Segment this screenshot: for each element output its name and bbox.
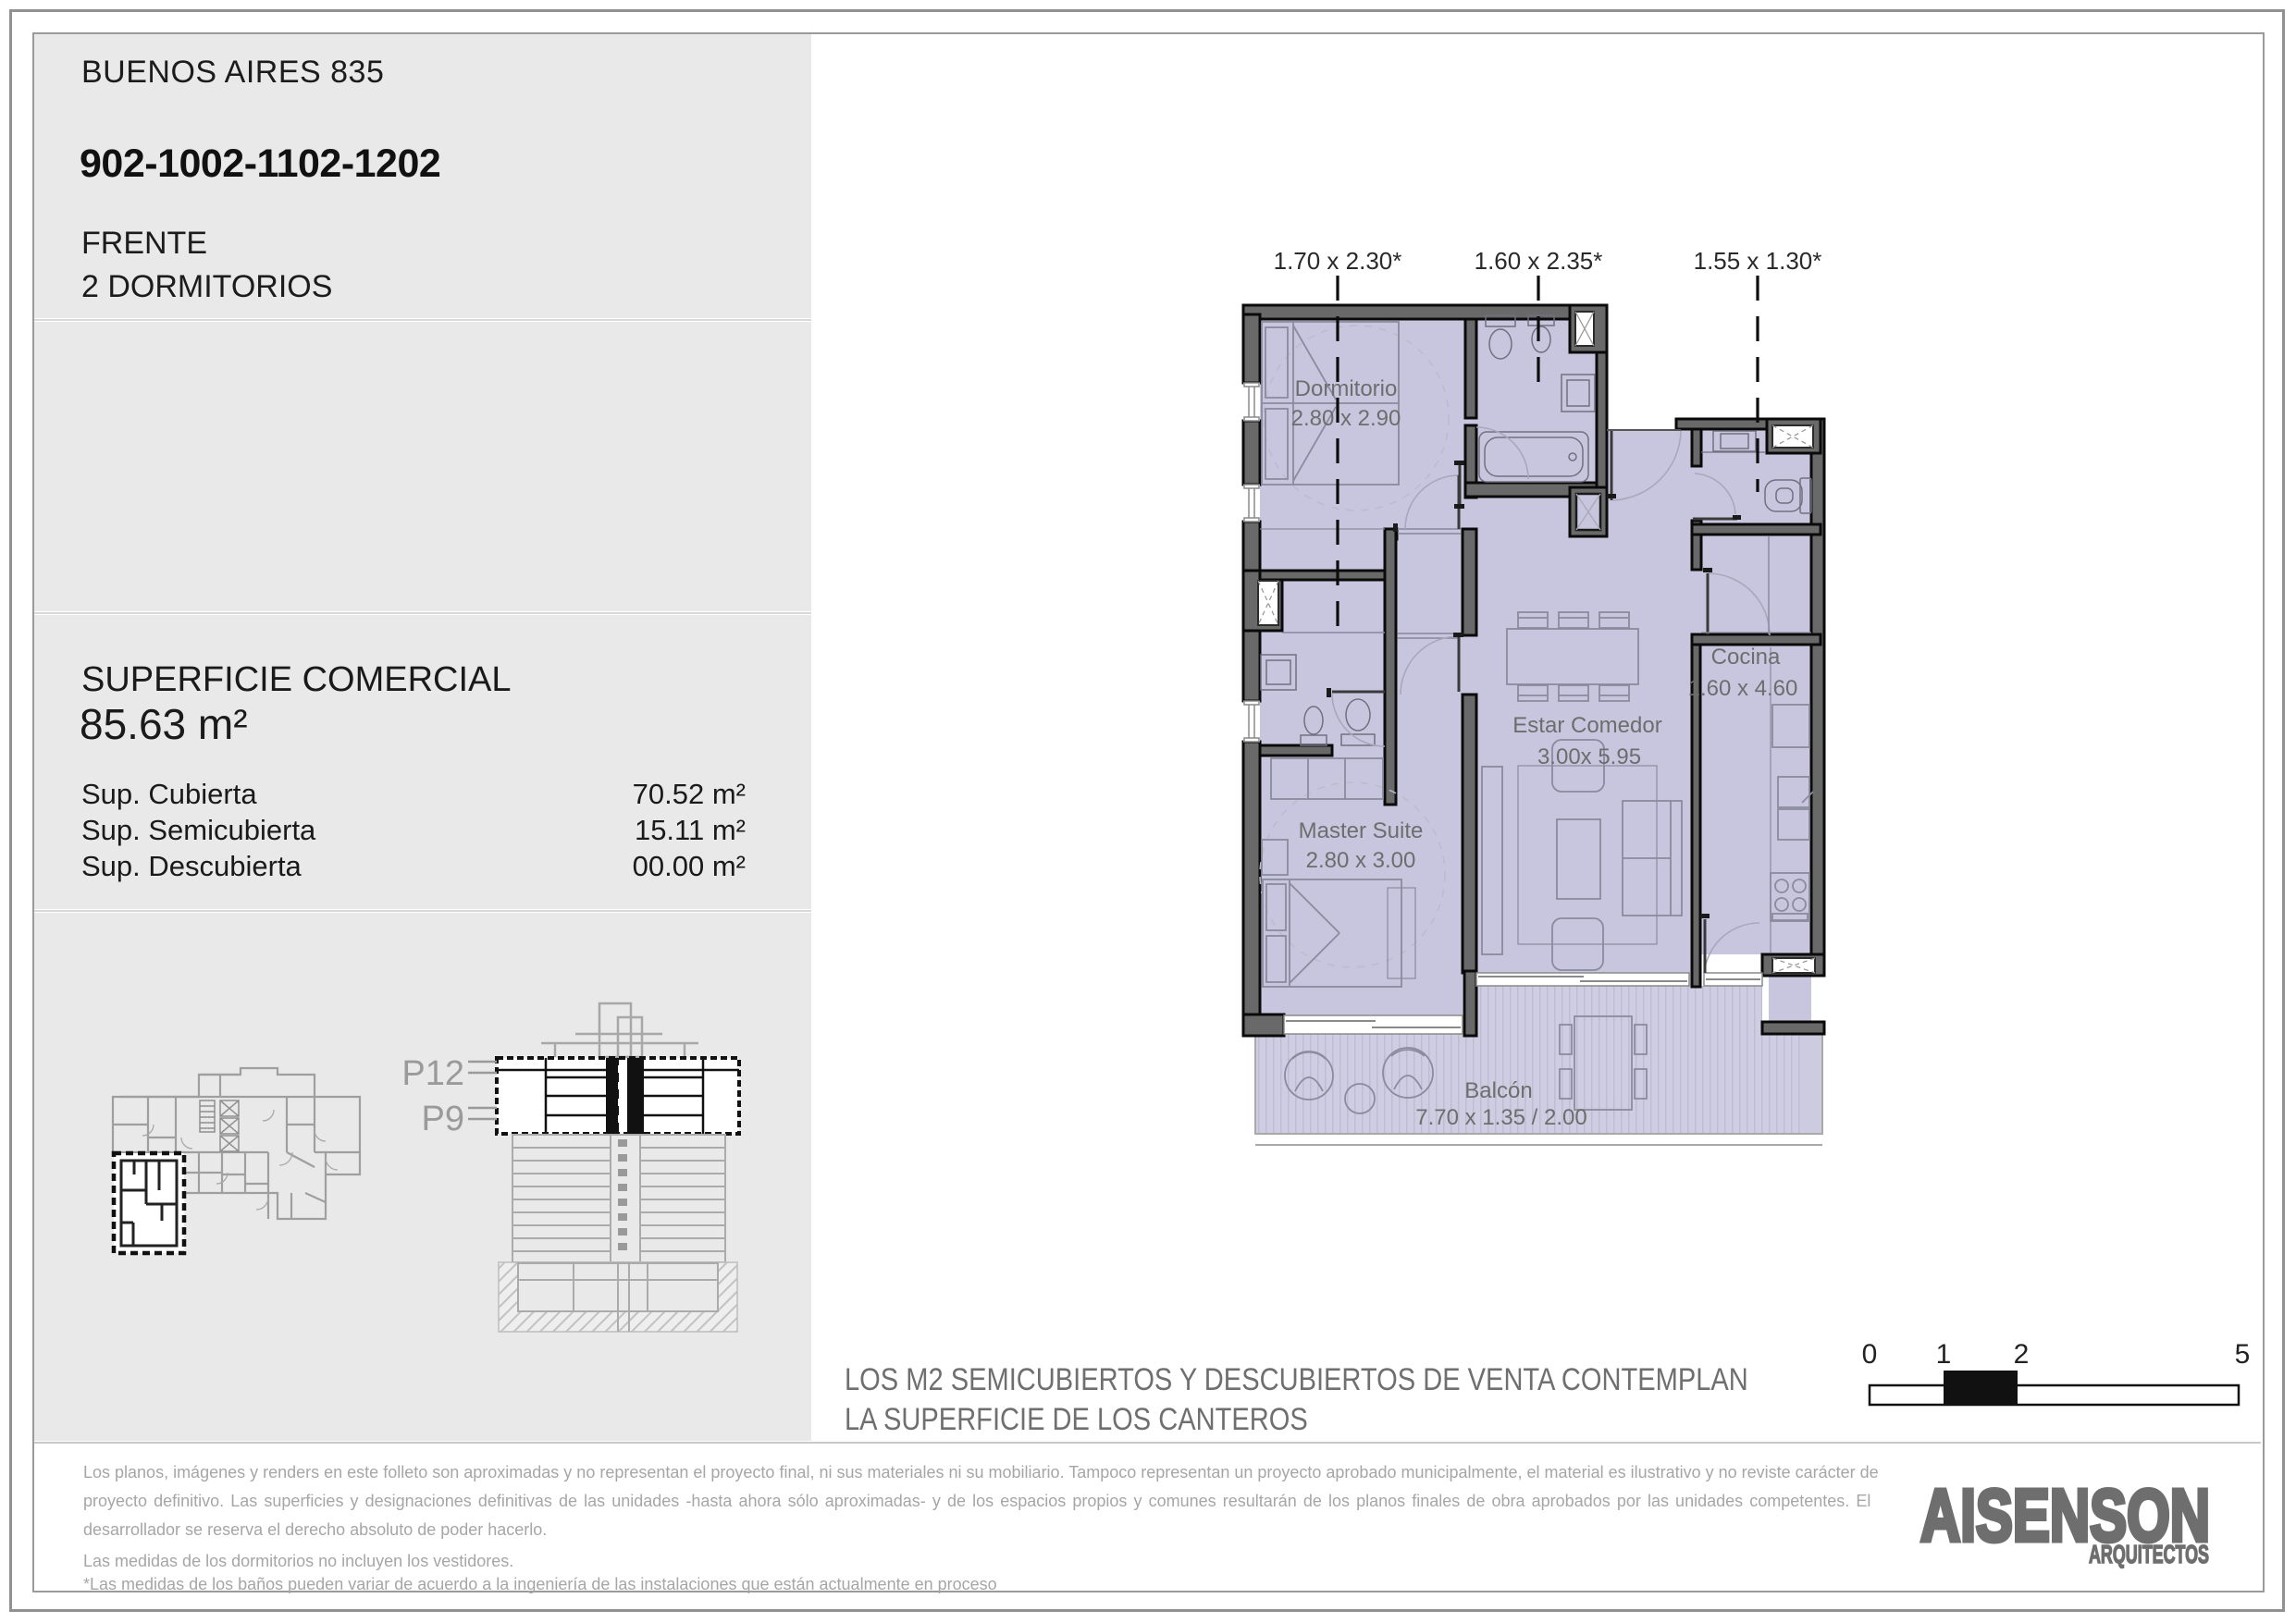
svg-text:1.55 x 1.30*: 1.55 x 1.30* (1694, 247, 1822, 275)
svg-text:1: 1 (1936, 1339, 1952, 1370)
svg-text:1.60 x 2.35*: 1.60 x 2.35* (1475, 247, 1603, 275)
svg-text:3.00x 5.95: 3.00x 5.95 (1537, 744, 1641, 769)
svg-text:1.60 x 4.60: 1.60 x 4.60 (1688, 676, 1798, 701)
svg-text:Estar Comedor: Estar Comedor (1512, 713, 1661, 738)
svg-text:P9: P9 (422, 1100, 464, 1138)
svg-text:Master Suite: Master Suite (1299, 818, 1424, 843)
svg-text:Cocina: Cocina (1711, 645, 1781, 670)
svg-text:Dormitorio: Dormitorio (1295, 376, 1398, 401)
svg-text:7.70 x 1.35 / 2.00: 7.70 x 1.35 / 2.00 (1415, 1105, 1586, 1130)
svg-text:Balcón: Balcón (1464, 1078, 1532, 1103)
svg-text:2.80 x 2.90: 2.80 x 2.90 (1291, 406, 1401, 431)
svg-text:1.70 x 2.30*: 1.70 x 2.30* (1274, 247, 1402, 275)
svg-text:2: 2 (2014, 1339, 2030, 1370)
svg-text:ARQUITECTOS: ARQUITECTOS (2089, 1540, 2209, 1568)
svg-text:P12: P12 (401, 1054, 464, 1093)
svg-text:2.80 x 3.00: 2.80 x 3.00 (1306, 848, 1416, 873)
svg-text:0: 0 (1862, 1339, 1878, 1370)
svg-text:5: 5 (2235, 1339, 2251, 1370)
